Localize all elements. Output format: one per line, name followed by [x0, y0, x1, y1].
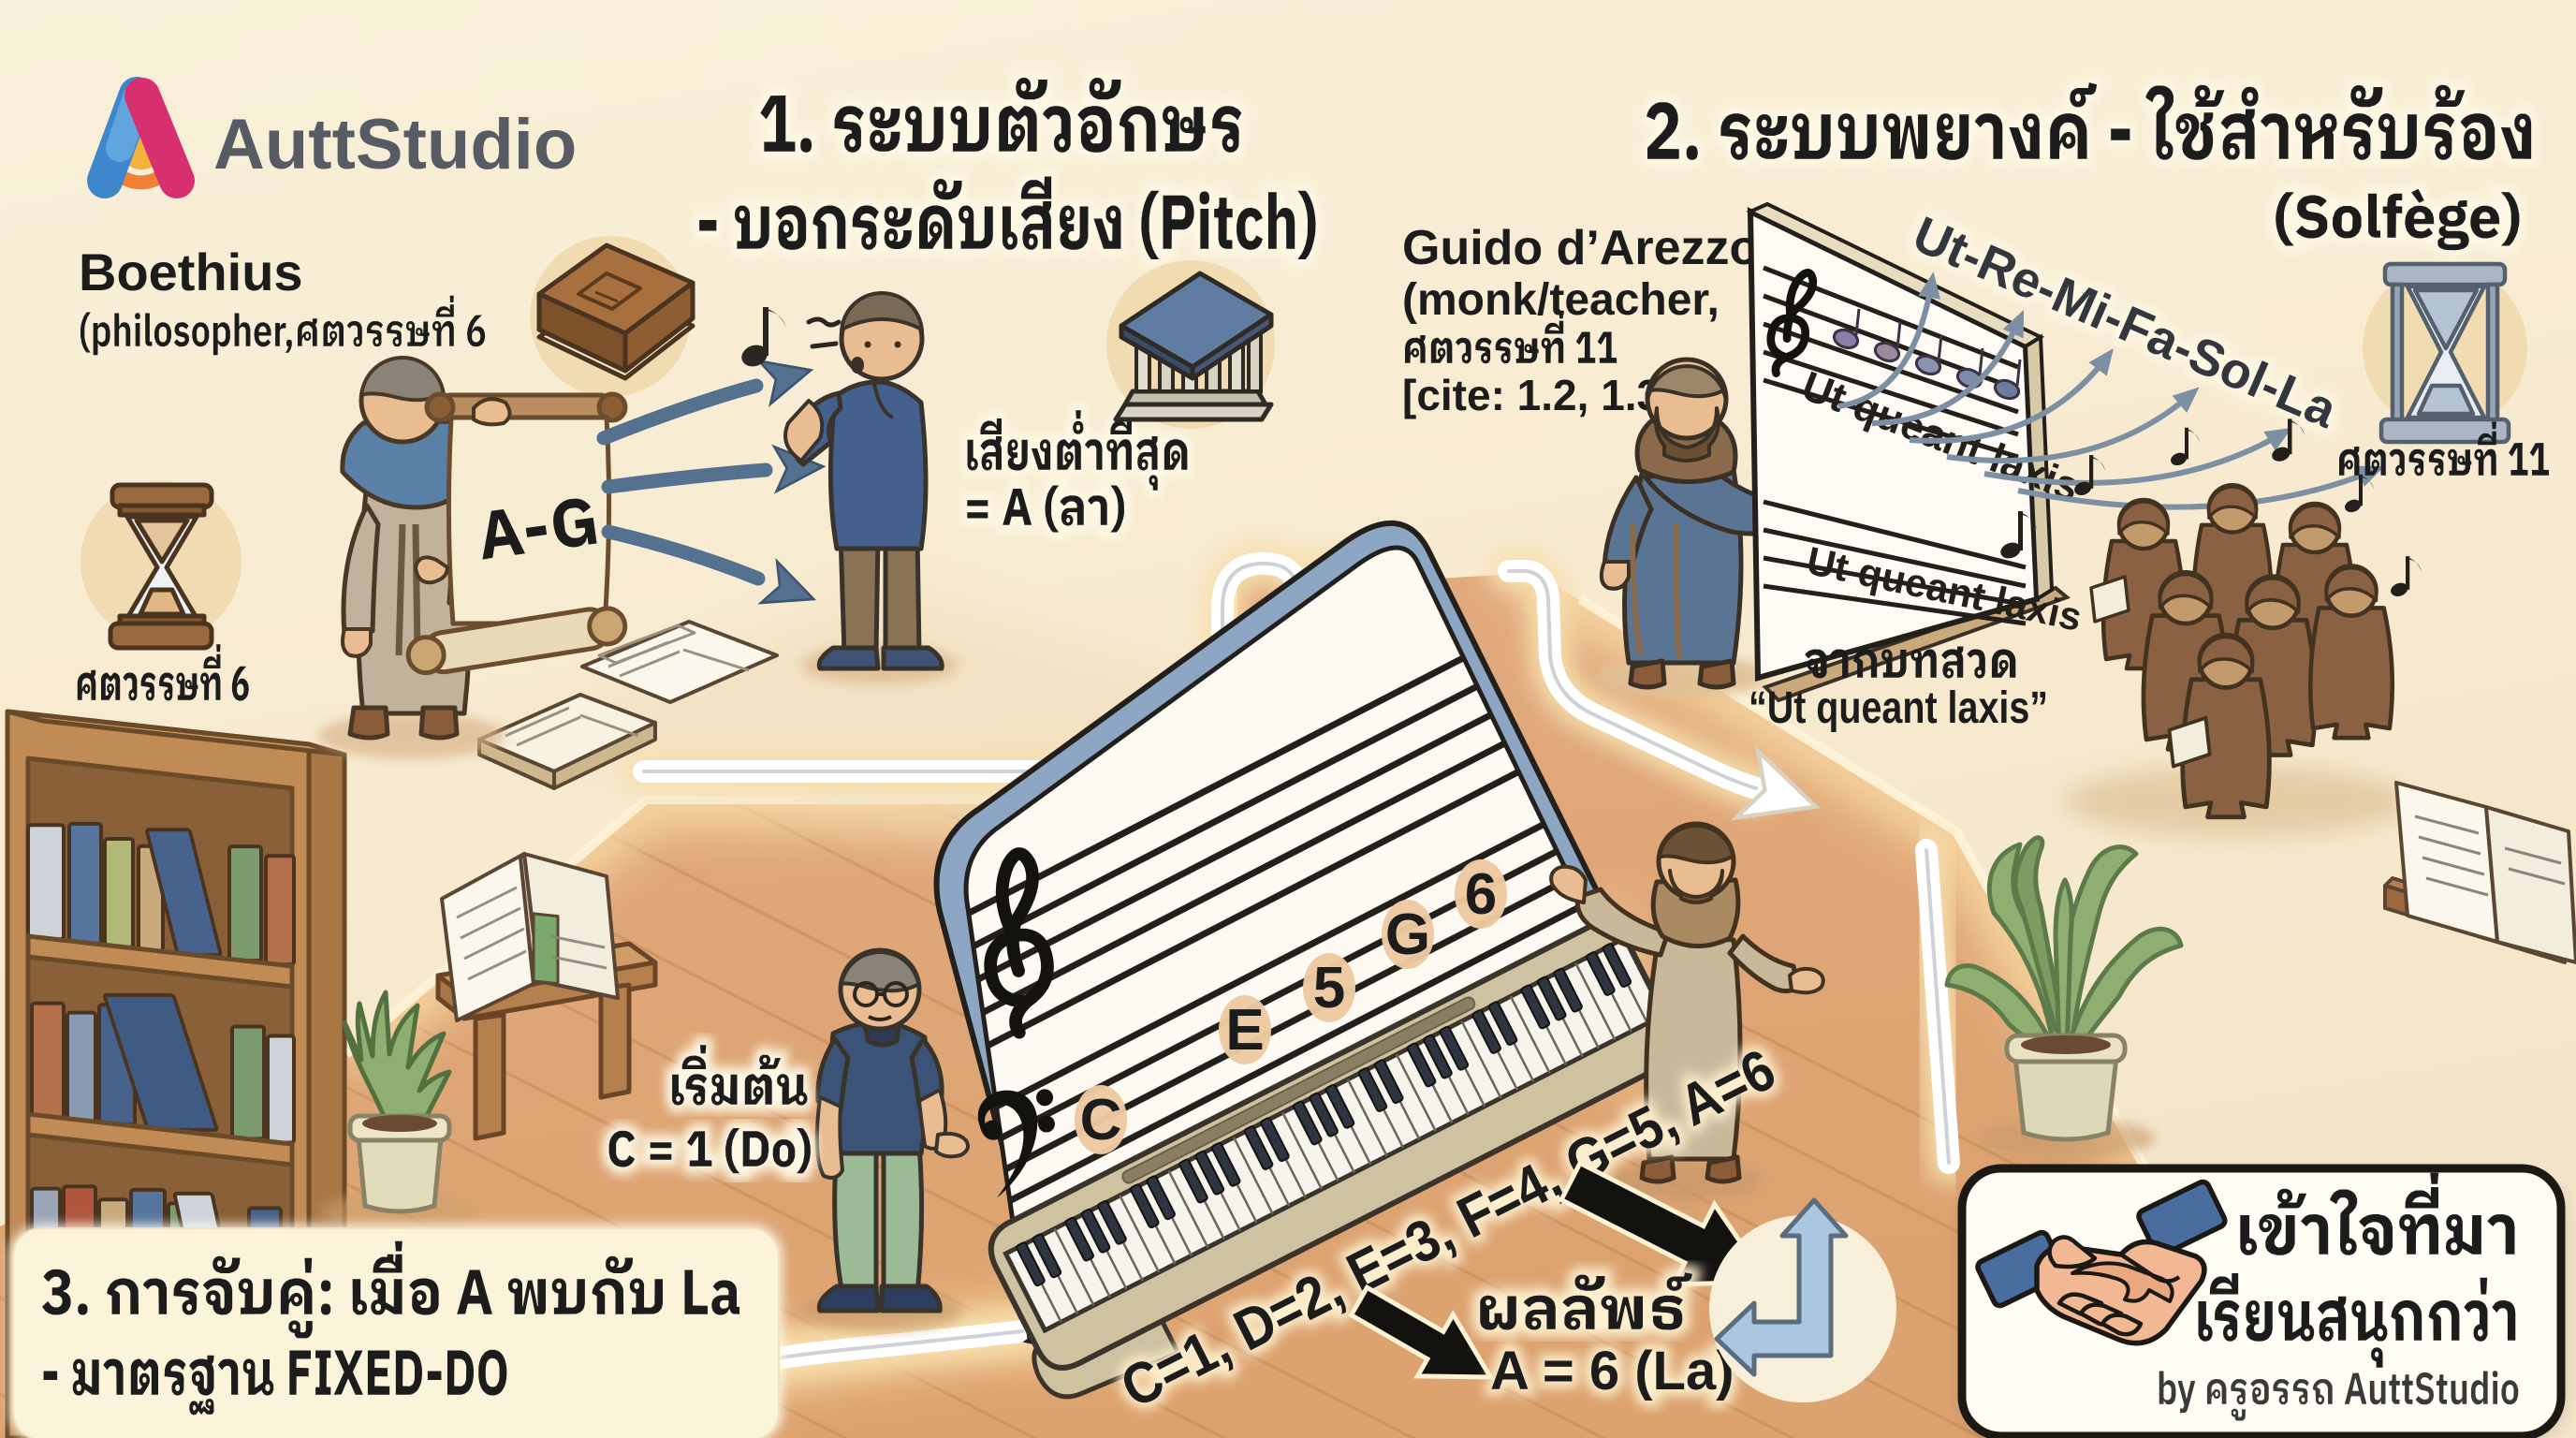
svg-text:AuttStudio: AuttStudio	[213, 105, 577, 184]
svg-text:[cite: 1.2, 1.3]: [cite: 1.2, 1.3]	[1402, 371, 1675, 419]
svg-text:“Ut queant laxis”: “Ut queant laxis”	[1749, 683, 2048, 733]
svg-text:6: 6	[1465, 862, 1497, 927]
svg-text:C: C	[1080, 1088, 1122, 1152]
svg-text:A = 6 (La): A = 6 (La)	[1490, 1341, 1734, 1401]
svg-text:Boethius: Boethius	[79, 242, 303, 301]
svg-text:Guido d’Arezzo: Guido d’Arezzo	[1402, 221, 1759, 275]
svg-text:E: E	[1225, 998, 1264, 1063]
svg-text:5: 5	[1313, 956, 1345, 1020]
svg-text:G: G	[1385, 902, 1430, 967]
